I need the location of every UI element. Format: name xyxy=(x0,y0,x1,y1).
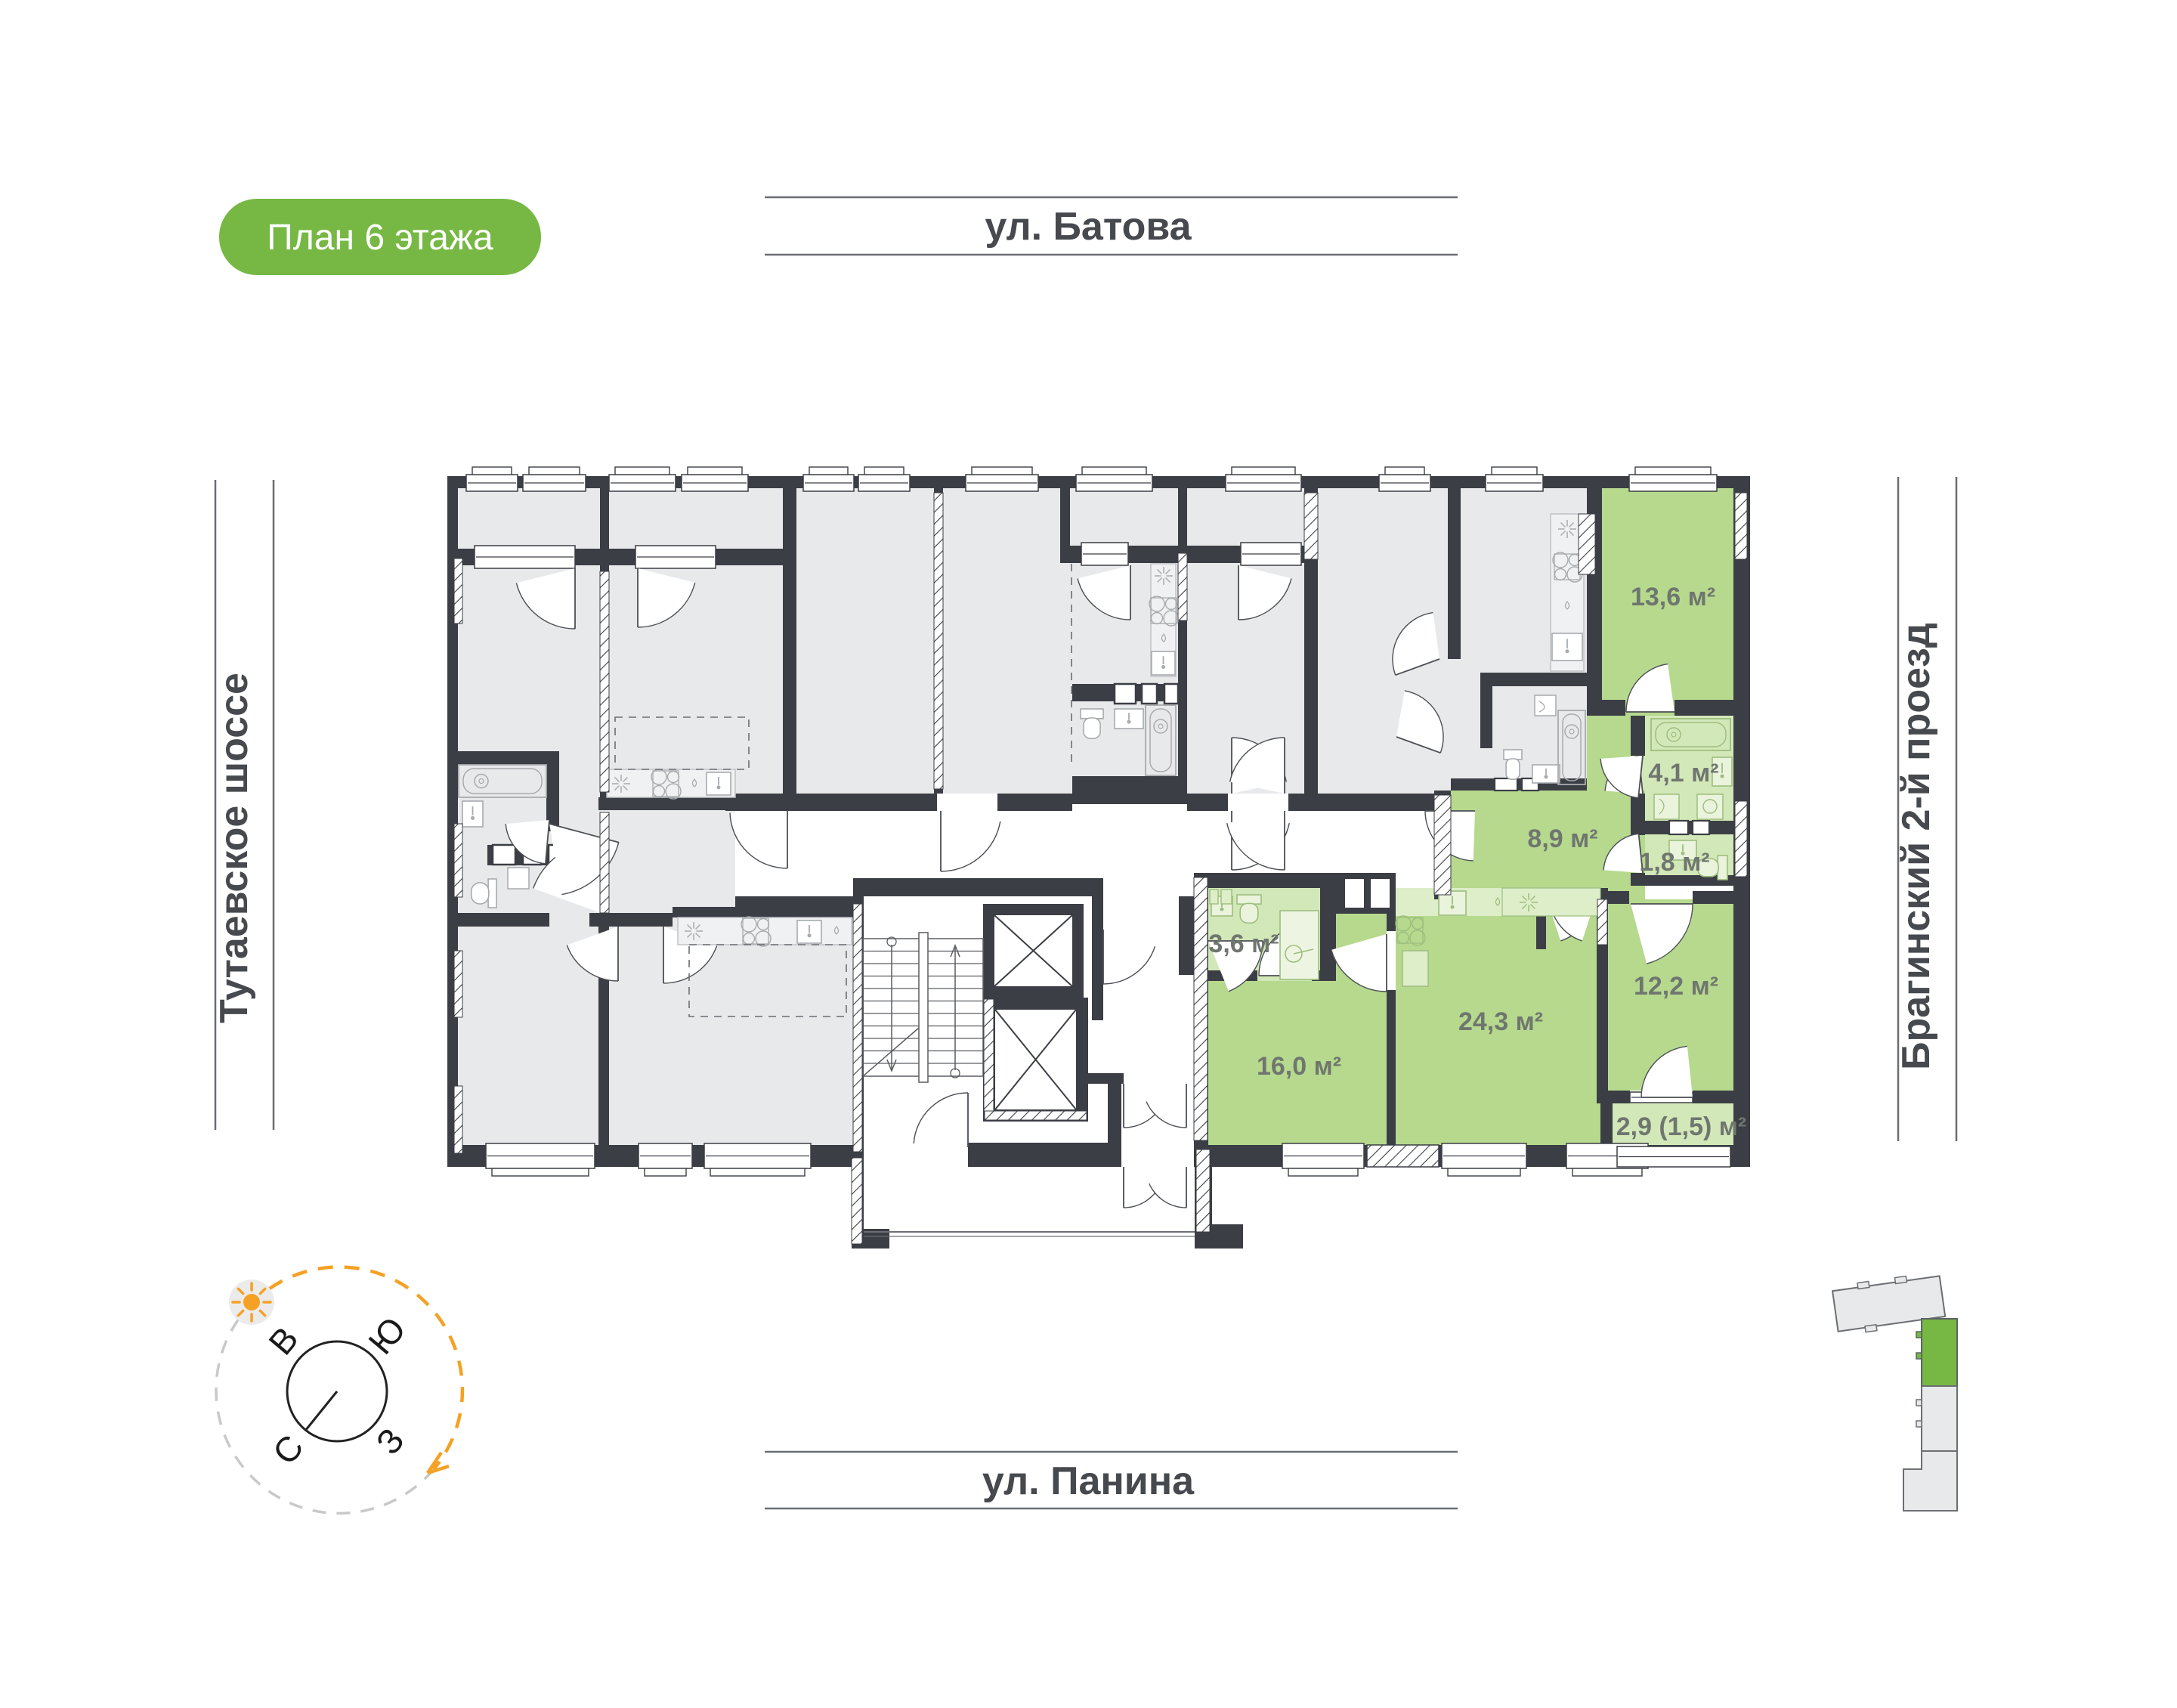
svg-text:Брагинский 2-й проезд: Брагинский 2-й проезд xyxy=(1894,623,1938,1070)
svg-text:С: С xyxy=(264,1428,311,1472)
svg-text:З: З xyxy=(368,1421,412,1462)
svg-text:План 6 этажа: План 6 этажа xyxy=(267,218,493,258)
svg-text:ул. Панина: ул. Панина xyxy=(982,1459,1195,1503)
svg-text:16,0 м²: 16,0 м² xyxy=(1257,1052,1341,1081)
svg-text:1,8 м²: 1,8 м² xyxy=(1639,848,1709,877)
svg-text:12,2 м²: 12,2 м² xyxy=(1634,972,1718,1001)
svg-text:ул. Батова: ул. Батова xyxy=(985,205,1192,249)
svg-text:3,6 м²: 3,6 м² xyxy=(1208,930,1279,958)
svg-text:В: В xyxy=(261,1320,306,1363)
svg-text:Тутаевское шоссе: Тутаевское шоссе xyxy=(212,673,256,1023)
svg-text:2,9 (1,5) м²: 2,9 (1,5) м² xyxy=(1616,1112,1747,1141)
svg-text:24,3 м²: 24,3 м² xyxy=(1458,1007,1543,1036)
svg-text:13,6 м²: 13,6 м² xyxy=(1631,583,1715,611)
svg-text:8,9 м²: 8,9 м² xyxy=(1527,825,1597,853)
svg-text:4,1 м²: 4,1 м² xyxy=(1648,759,1718,787)
